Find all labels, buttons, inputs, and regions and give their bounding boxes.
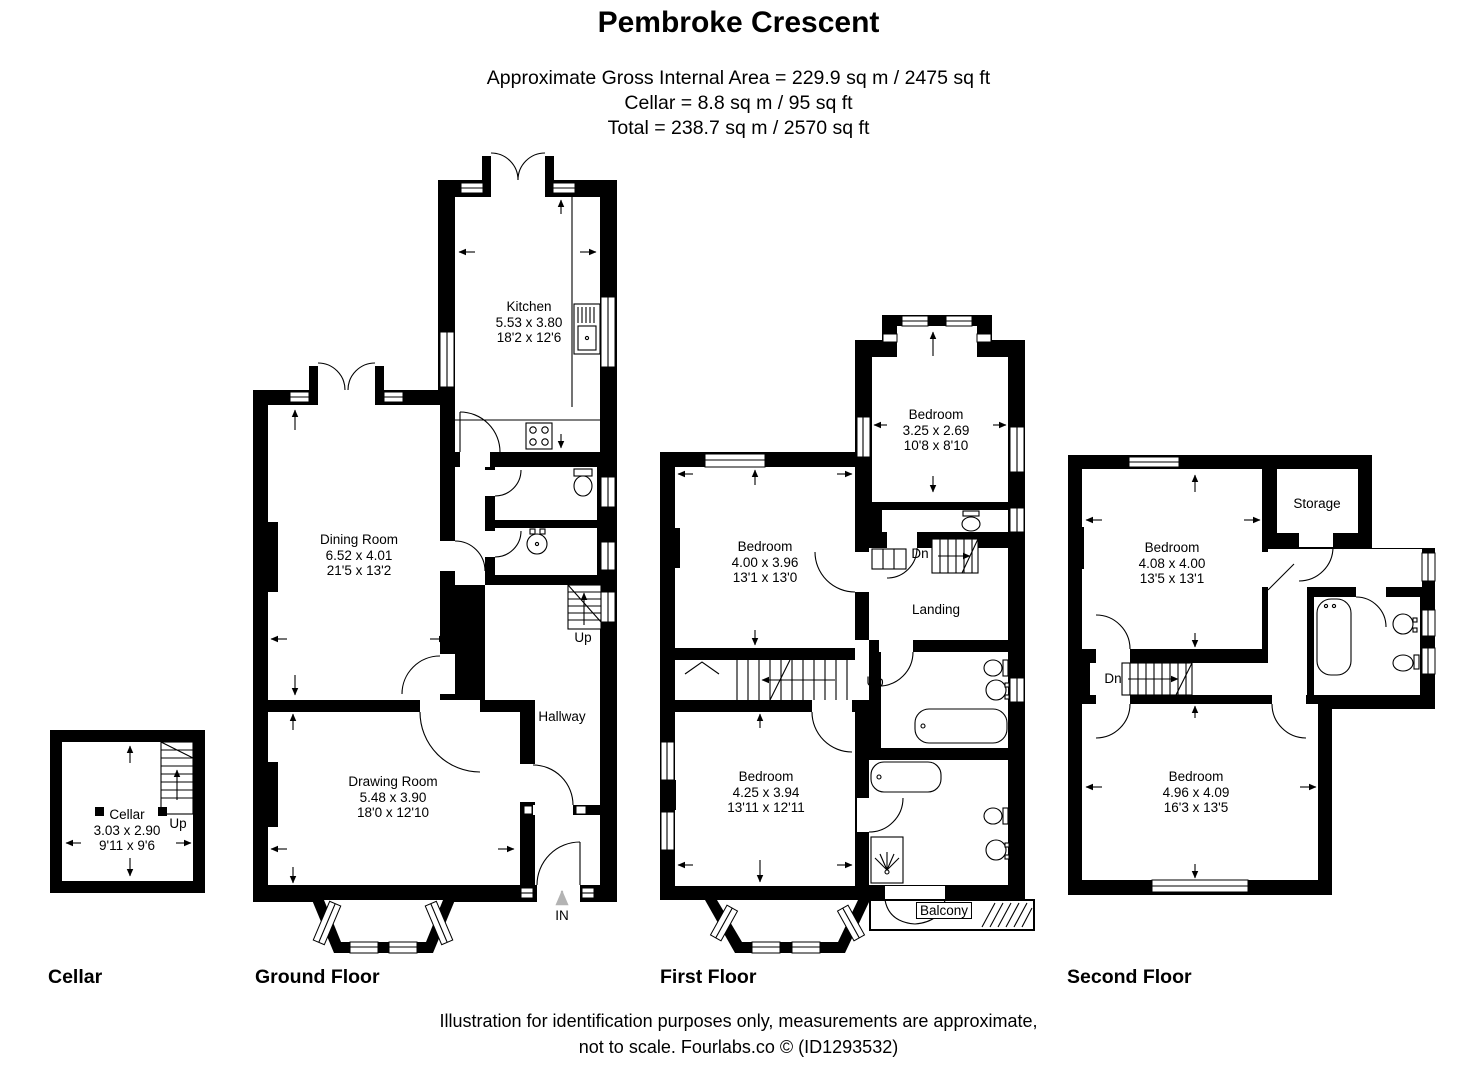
disclaimer-line: not to scale. Fourlabs.co © (ID1293532) [0, 1034, 1477, 1060]
second-staircase-down [1122, 663, 1192, 695]
area-summary: Approximate Gross Internal Area = 229.9 … [0, 66, 1477, 141]
toilet-symbol [1393, 655, 1419, 671]
room-label-sf-bedroom-top: Bedroom4.08 x 4.0013'5 x 13'1 [1139, 540, 1206, 587]
bath-symbol [1317, 599, 1351, 675]
stairs-up-label: Up [866, 674, 883, 689]
toilet-symbol [984, 660, 1008, 676]
page-title: Pembroke Crescent [0, 6, 1477, 40]
gross-area-line: Approximate Gross Internal Area = 229.9 … [0, 66, 1477, 91]
floor-label-ground: Ground Floor [255, 966, 380, 989]
ground-floor-plan [250, 152, 620, 962]
room-label-balcony: Balcony [916, 902, 972, 919]
ground-staircase-up [568, 585, 601, 629]
entrance-label: IN [555, 908, 569, 923]
room-label-ff-bedroom-top: Bedroom3.25 x 2.6910'8 x 8'10 [903, 407, 970, 454]
floorplan-page: Pembroke Crescent Approximate Gross Inte… [0, 0, 1477, 1080]
total-area-line: Total = 238.7 sq m / 2570 sq ft [0, 116, 1477, 141]
toilet-symbol [962, 511, 980, 531]
room-label-drawing-room: Drawing Room5.48 x 3.9018'0 x 12'10 [348, 774, 437, 821]
basin-symbol [986, 680, 1009, 700]
cellar-staircase [161, 742, 193, 814]
room-label-sf-bedroom-bottom: Bedroom4.96 x 4.0916'3 x 13'5 [1163, 769, 1230, 816]
room-label-kitchen: Kitchen5.53 x 3.8018'2 x 12'6 [496, 299, 563, 346]
room-label-landing: Landing [912, 602, 960, 617]
floor-label-cellar: Cellar [48, 966, 102, 989]
room-label-dining-room: Dining Room6.52 x 4.0121'5 x 13'2 [320, 532, 398, 579]
stairs-up-label: Up [169, 816, 186, 831]
stairs-up-label: Up [574, 630, 591, 645]
room-label-ff-bedroom-mid: Bedroom4.00 x 3.9613'1 x 13'0 [732, 539, 799, 586]
disclaimer: Illustration for identification purposes… [0, 1008, 1477, 1060]
first-floor-plan [657, 312, 1037, 957]
room-label-ff-bedroom-bottom: Bedroom4.25 x 3.9413'11 x 12'11 [727, 769, 804, 816]
cellar-area-line: Cellar = 8.8 sq m / 95 sq ft [0, 91, 1477, 116]
room-label-hallway: Hallway [538, 709, 585, 724]
stairs-down-label: Dn [1104, 671, 1121, 686]
basin-symbol [986, 840, 1009, 860]
hob-symbol [526, 423, 552, 449]
floor-label-first: First Floor [660, 966, 756, 989]
toilet-symbol [984, 808, 1008, 824]
stairs-down-label: Dn [911, 546, 928, 561]
disclaimer-line: Illustration for identification purposes… [0, 1008, 1477, 1034]
kitchen-sink-symbol [574, 304, 600, 354]
floor-label-second: Second Floor [1067, 966, 1192, 989]
room-label-cellar: Cellar3.03 x 2.909'11 x 9'6 [94, 807, 161, 854]
bath-symbol [915, 709, 1007, 743]
room-label-storage: Storage [1293, 496, 1340, 511]
wc-toilet-symbol [574, 469, 592, 496]
bath-symbol [871, 762, 941, 792]
